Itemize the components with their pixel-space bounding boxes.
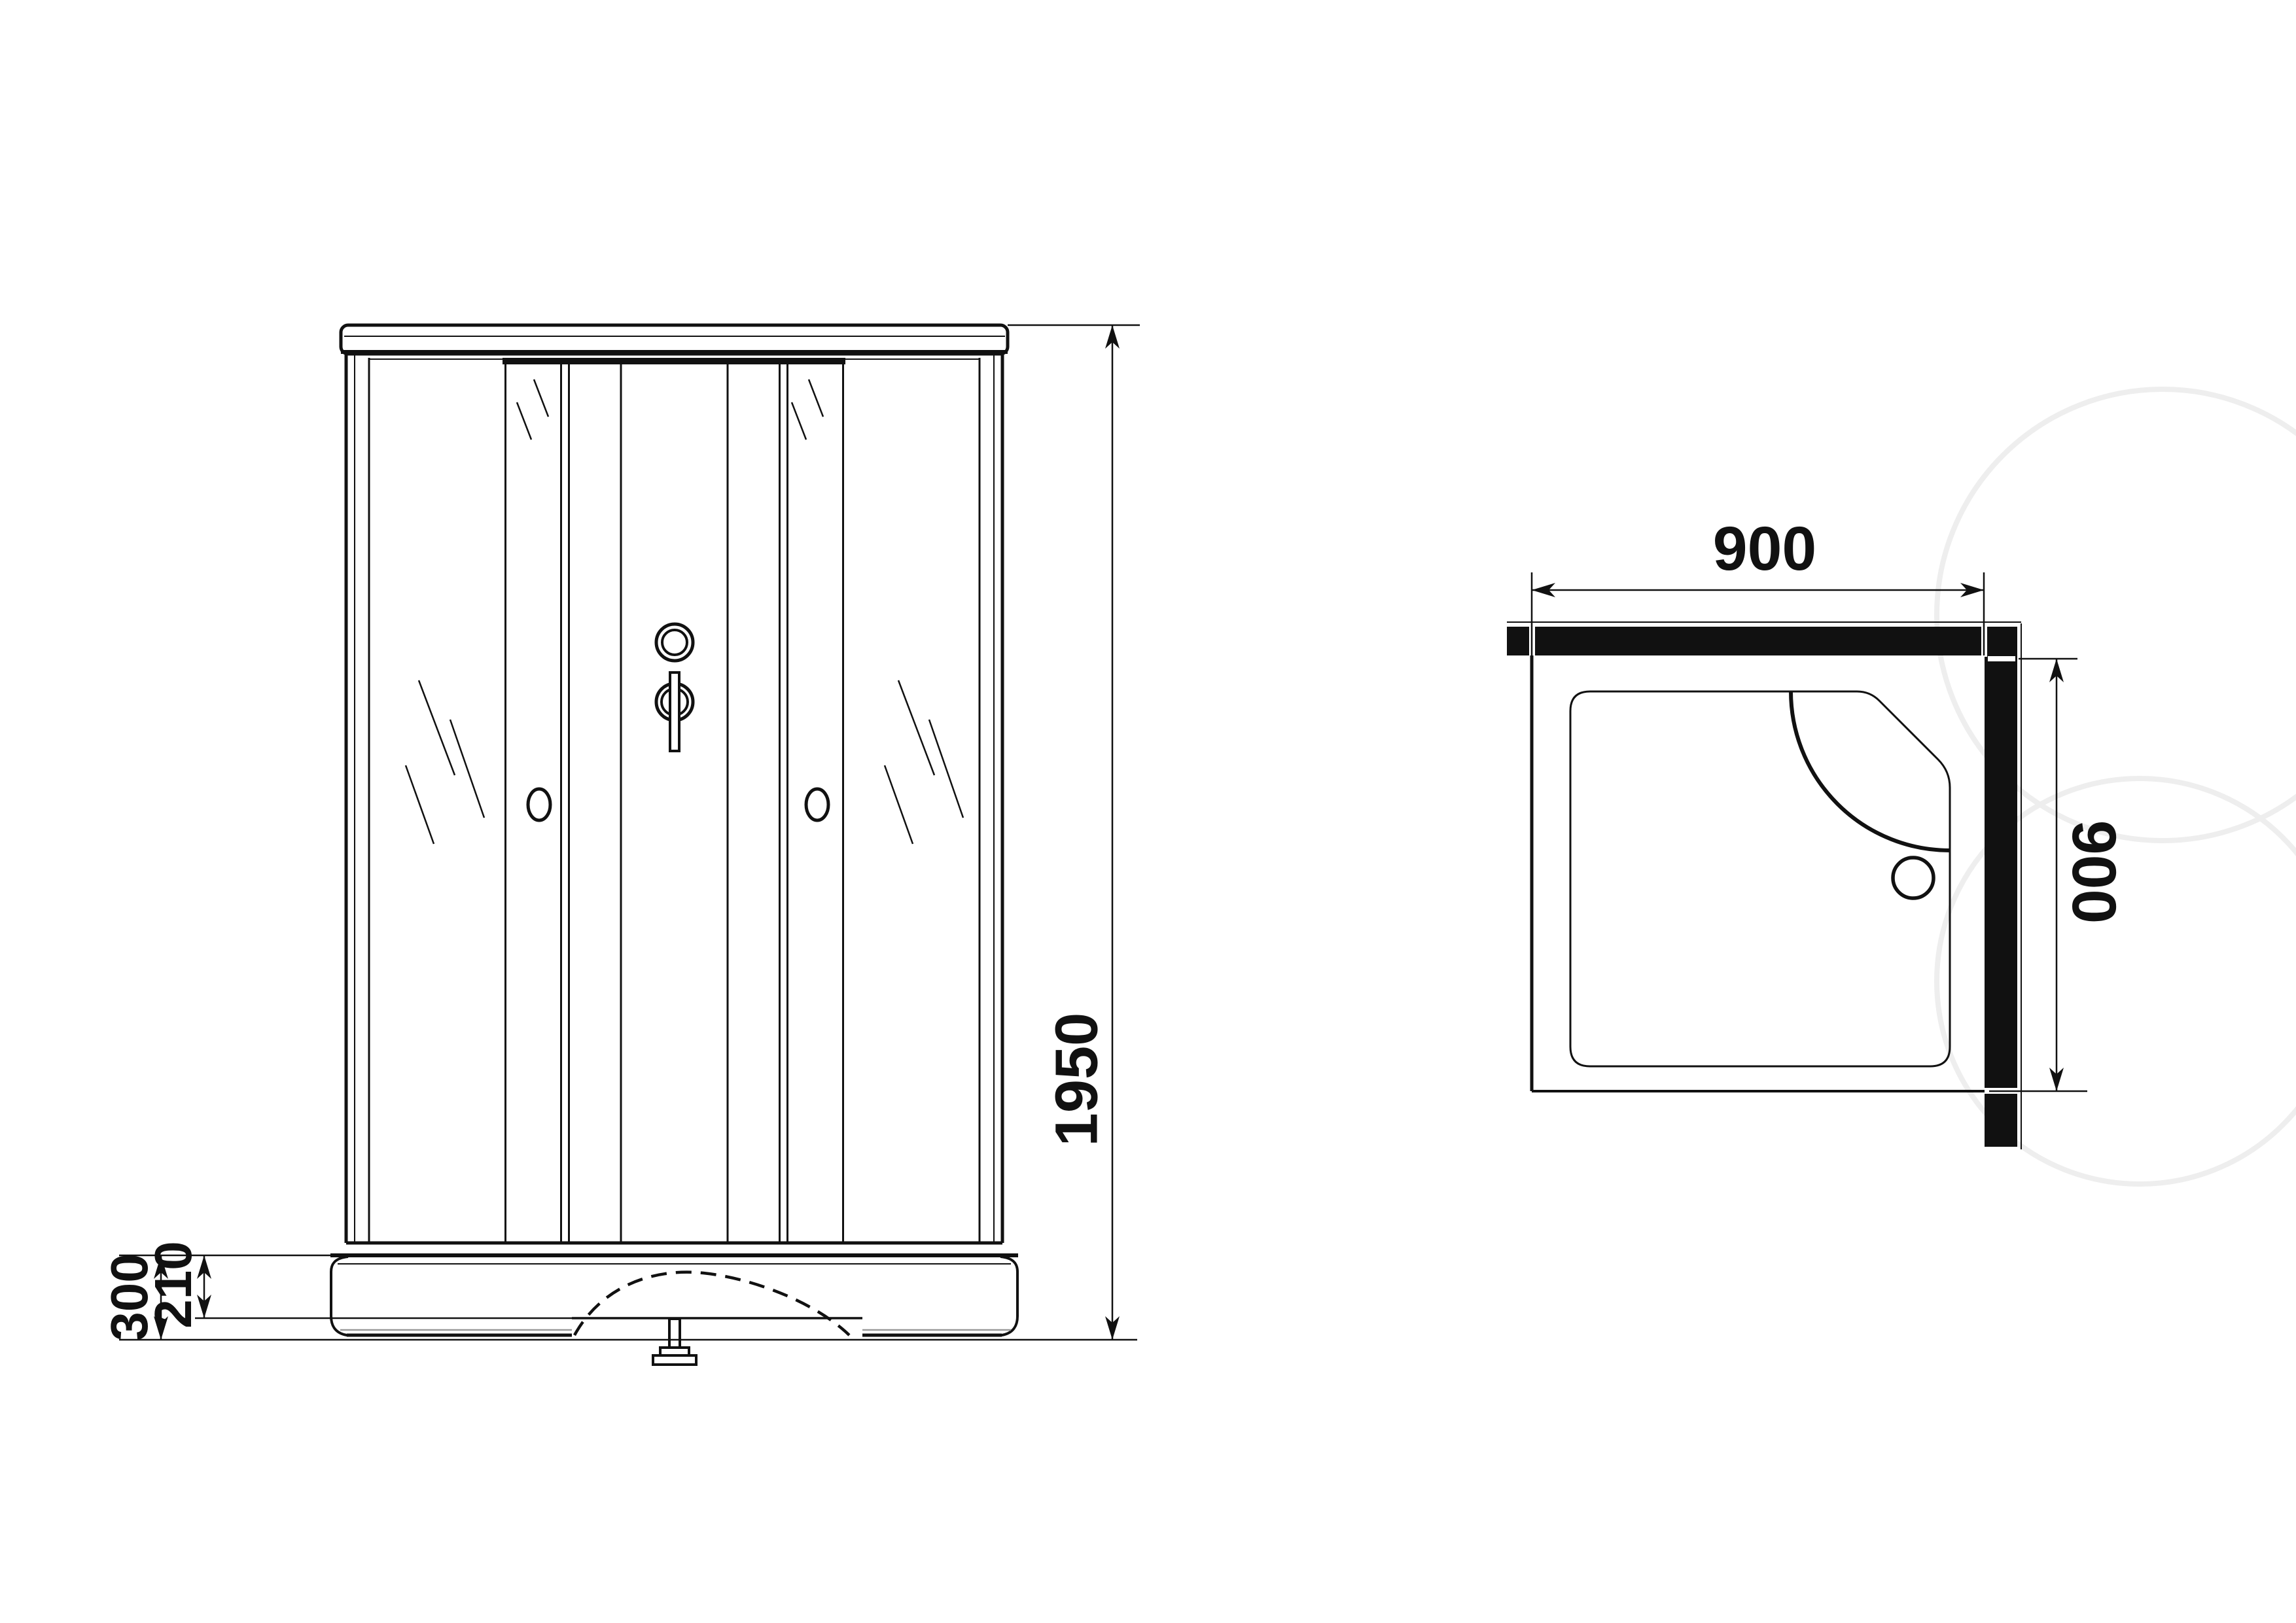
dimension-1950: 1950 bbox=[1043, 325, 1120, 1340]
tray-corner-arc bbox=[1791, 691, 1950, 850]
drawing-page: 1950 300 210 bbox=[0, 0, 2296, 1623]
dim-label-width: 900 bbox=[1713, 514, 1817, 584]
dimension-210: 210 bbox=[144, 1241, 211, 1328]
mixer-control-icon bbox=[656, 624, 693, 751]
side-wall-bar bbox=[1985, 655, 2017, 1147]
door-knobs bbox=[528, 789, 828, 820]
front-view bbox=[330, 325, 1018, 1365]
dim-label-tray-height: 210 bbox=[144, 1241, 202, 1328]
technical-drawing-canvas: 1950 300 210 bbox=[0, 0, 2296, 1623]
bottom-rail bbox=[330, 1243, 1018, 1255]
glass-hatch-marks bbox=[406, 379, 963, 844]
back-wall-bar bbox=[1507, 627, 2017, 655]
tray-hidden-profile-dashed bbox=[574, 1272, 849, 1335]
frame-profiles bbox=[346, 354, 1002, 1243]
dim-label-total-height: 1950 bbox=[1043, 1013, 1110, 1147]
wall-bars bbox=[1507, 625, 2019, 1147]
roof-cap bbox=[341, 325, 1008, 354]
door-top-track bbox=[369, 358, 980, 364]
dim-label-depth: 900 bbox=[2059, 820, 2128, 924]
door-panel-lines bbox=[506, 364, 843, 1243]
enclosure-footprint bbox=[1532, 655, 1985, 1091]
adjustable-foot bbox=[653, 1319, 696, 1365]
plan-view bbox=[1507, 622, 2021, 1149]
drain-circle bbox=[1893, 858, 1934, 898]
wall-outline bbox=[1507, 622, 2021, 1149]
